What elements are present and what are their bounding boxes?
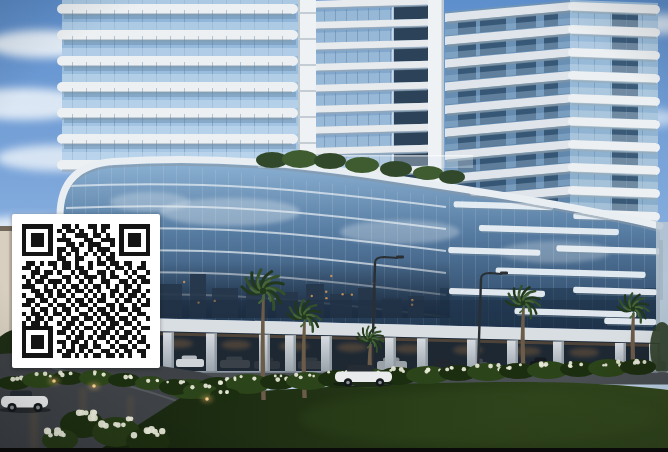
letterbox-bar <box>0 448 668 452</box>
architectural-rendering <box>0 0 668 452</box>
qr-module <box>146 353 150 358</box>
qr-code-overlay <box>12 214 160 368</box>
qr-code-grid <box>22 224 150 358</box>
